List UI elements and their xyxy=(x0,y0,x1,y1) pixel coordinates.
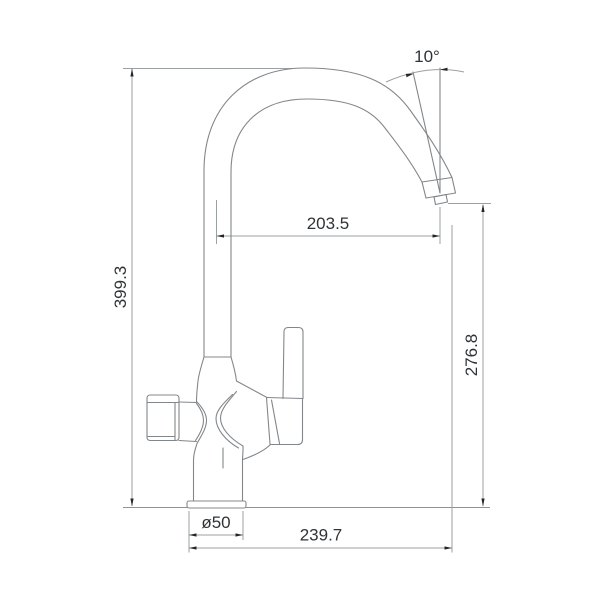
arrow-up-icon xyxy=(130,69,133,77)
dimension-label-spout-angle: 10° xyxy=(414,47,440,66)
lever-handle xyxy=(283,328,303,399)
dim-spout-reach: 203.5 xyxy=(217,200,441,244)
arrow-up-icon xyxy=(481,204,484,212)
spout-inner-curve xyxy=(231,99,426,198)
arrow-right-icon xyxy=(433,234,441,237)
drawing-canvas: 399.3 276.8 203.5 10° xyxy=(0,0,600,600)
valve-bottom-line xyxy=(243,445,271,460)
dim-overall-height: 399.3 xyxy=(111,69,293,507)
handle-base-top-line xyxy=(267,398,304,399)
faucet-outline xyxy=(147,68,456,508)
dimension-label-base-diameter: ø50 xyxy=(201,513,230,532)
arrow-down-icon xyxy=(481,499,484,507)
dimension-label-overall-height: 399.3 xyxy=(111,266,130,309)
arrow-right-icon xyxy=(236,533,244,536)
angle-arc xyxy=(386,70,464,82)
dimension-label-outlet-height: 276.8 xyxy=(462,334,481,377)
handle-base-outline xyxy=(270,399,303,445)
faucet-technical-drawing: 399.3 276.8 203.5 10° xyxy=(0,0,600,600)
knob-connector-bottom-line xyxy=(179,441,197,442)
arrow-left-icon xyxy=(189,533,197,536)
arrow-right-icon xyxy=(445,546,453,549)
base-flange xyxy=(187,501,246,508)
dim-outlet-height: 276.8 xyxy=(448,204,491,507)
handle-base-rim-line xyxy=(272,400,280,444)
dimension-label-spout-reach: 203.5 xyxy=(307,214,350,233)
handle-base-left-line xyxy=(267,398,271,445)
arrow-down-icon xyxy=(130,499,133,507)
body-bottom-right-outline xyxy=(243,446,244,501)
dim-base-diameter: ø50 xyxy=(189,511,243,540)
body-left-outline xyxy=(194,357,207,501)
arrow-angle-left-icon xyxy=(406,74,414,77)
angle-ref-line-tilted xyxy=(413,72,440,193)
arrow-left-icon xyxy=(189,546,197,549)
arrow-left-icon xyxy=(217,234,225,237)
body-front-curve-2 xyxy=(221,392,244,447)
dim-spout-angle: 10° xyxy=(386,47,464,193)
dimension-label-total-reach: 239.7 xyxy=(300,526,343,545)
knob-connector-top-line xyxy=(179,402,197,403)
filter-knob xyxy=(147,395,179,441)
